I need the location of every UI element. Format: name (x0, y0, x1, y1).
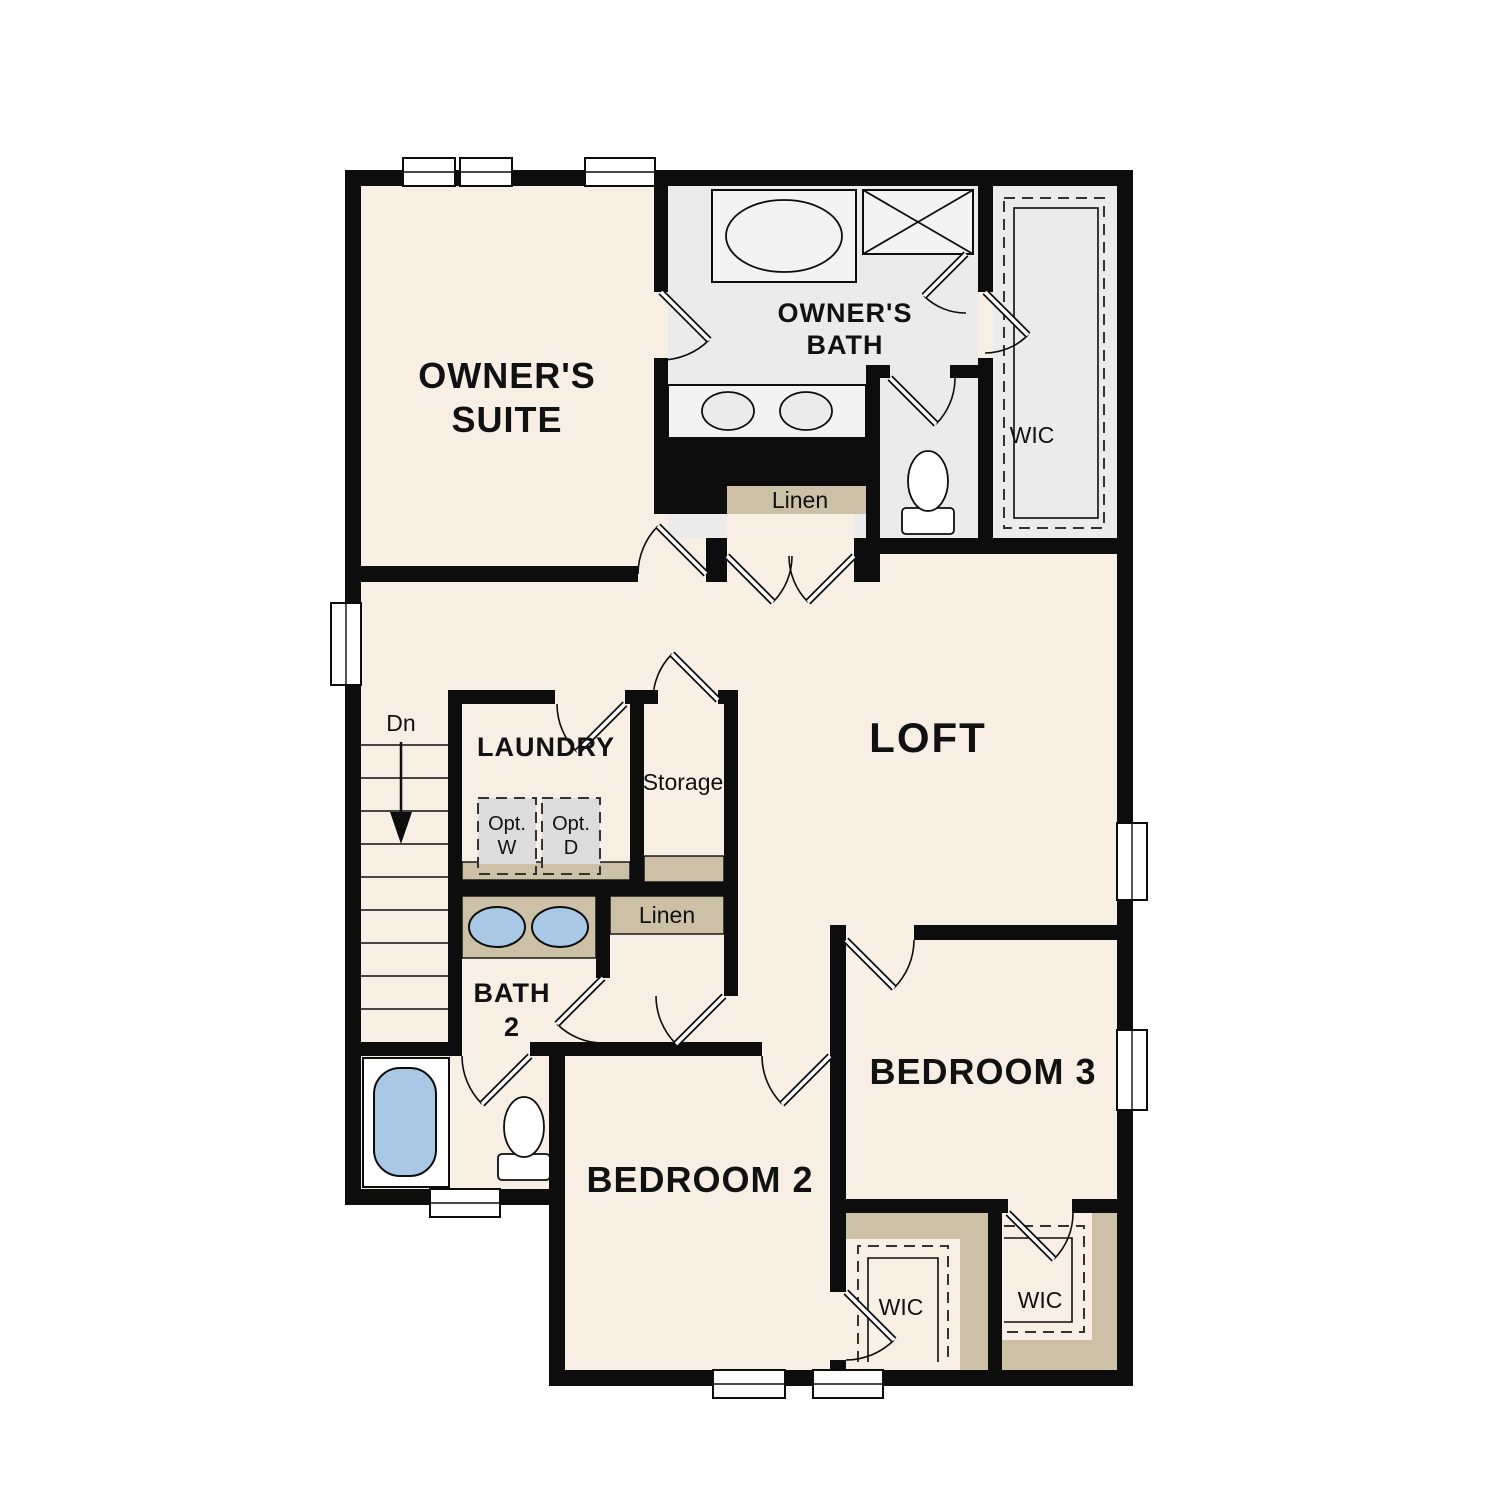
wall-segment (978, 358, 993, 538)
bath2-sink-left (469, 907, 525, 947)
wall-segment (1072, 1199, 1117, 1213)
linen-lower-label: Linen (639, 902, 695, 928)
wall-segment (345, 566, 638, 582)
wall-segment (654, 358, 668, 438)
opt-dryer-label-line1: Opt. (552, 813, 590, 835)
owners-wic-label: WIC (1010, 422, 1055, 448)
opt-dryer-label-line2: D (564, 837, 578, 859)
wall-segment (345, 1042, 462, 1056)
window-bedroom3 (1117, 1030, 1147, 1110)
wall-segment (978, 186, 993, 292)
wall-segment (950, 365, 978, 378)
wall-segment (549, 1042, 762, 1056)
bedroom2-label: BEDROOM 2 (586, 1159, 813, 1200)
owners-toilet-bowl (908, 451, 948, 511)
opt-washer-label-line2: W (498, 837, 517, 859)
storage-label: Storage (643, 769, 724, 795)
loft-label: LOFT (869, 714, 987, 761)
wall-segment (448, 690, 462, 1042)
window-suite-1 (403, 158, 455, 186)
wall-segment (846, 1199, 1008, 1213)
wall-segment (706, 538, 727, 582)
stairs-dn-label: Dn (386, 710, 415, 736)
wall-segment (866, 538, 1133, 554)
window-bath2 (430, 1189, 500, 1217)
wall-segment (988, 1199, 1002, 1386)
laundry-counter (462, 862, 630, 880)
bath2-sink-right (532, 907, 588, 947)
wall-segment (880, 365, 890, 378)
wall-segment (724, 896, 738, 996)
opt-washer-label-line1: Opt. (488, 813, 526, 835)
wall-segment (718, 690, 738, 704)
window-bedroom2-2 (813, 1370, 883, 1398)
floor-plan-page: OWNER'S SUITE OWNER'S BATH WIC Linen LOF… (0, 0, 1500, 1500)
window-hall-left (331, 603, 361, 685)
wall-segment (448, 690, 555, 704)
bath2-tub (374, 1068, 436, 1176)
floor-plan-drawing: OWNER'S SUITE OWNER'S BATH WIC Linen LOF… (0, 0, 1500, 1500)
wall-segment (724, 704, 738, 902)
bath2-toilet-bowl (504, 1097, 544, 1157)
wic-bedroom2-label: WIC (879, 1294, 924, 1320)
wall-segment (530, 1042, 549, 1056)
wall-segment (1117, 170, 1133, 1386)
wall-segment (830, 925, 846, 1292)
owners-vanity (668, 385, 866, 438)
owners-sink-left (702, 392, 754, 430)
wall-segment (866, 365, 880, 545)
bath2-label-line2: 2 (504, 1012, 520, 1042)
wall-segment (596, 882, 610, 978)
window-suite-2 (460, 158, 512, 186)
wall-segment (914, 925, 1117, 940)
wall-segment (596, 882, 738, 896)
linen-upper-label: Linen (772, 487, 828, 513)
window-loft (1117, 823, 1147, 900)
wic-bedroom3-label: WIC (1018, 1287, 1063, 1313)
owners-suite-label-line1: OWNER'S (418, 355, 596, 396)
wall-segment (654, 438, 876, 486)
storage-shelf (644, 856, 724, 882)
window-bedroom2-1 (713, 1370, 785, 1398)
laundry-label: LAUNDRY (477, 732, 615, 762)
bath2-label-line1: BATH (474, 978, 551, 1008)
owners-sink-right (780, 392, 832, 430)
wall-segment (549, 1042, 565, 1386)
garden-tub (712, 190, 856, 282)
linen-upper-alcove (727, 514, 854, 538)
owners-bath-label-line2: BATH (807, 330, 884, 360)
wall-segment (654, 186, 668, 292)
wall-segment (654, 486, 727, 514)
window-owners-bath (585, 158, 655, 186)
owners-suite-label-line2: SUITE (451, 399, 562, 440)
owners-bath-label-line1: OWNER'S (778, 298, 913, 328)
bedroom3-label: BEDROOM 3 (869, 1051, 1096, 1092)
